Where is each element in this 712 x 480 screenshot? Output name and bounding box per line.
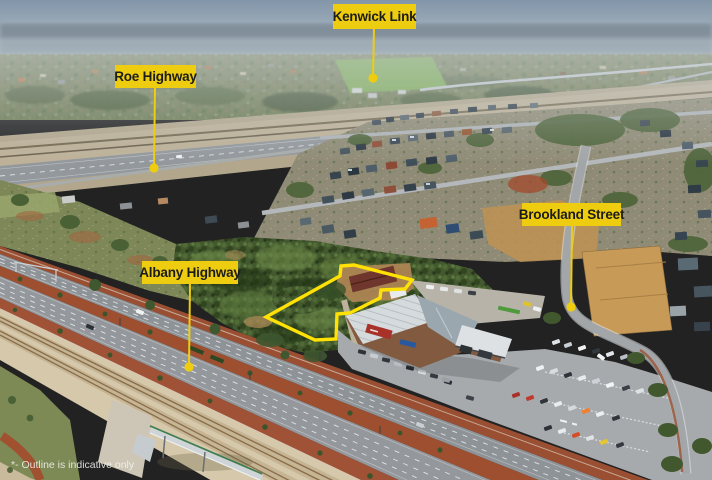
aerial-photo-canvas: Kenwick Link Roe Highway Brookland Stree… — [0, 0, 712, 480]
roe-highway-label: Roe Highway — [114, 69, 197, 84]
brookland-street-label: Brookland Street — [519, 207, 625, 222]
nursery-patch — [508, 175, 548, 193]
roe-highway-dot — [149, 163, 158, 172]
outline-disclaimer: *- Outline is indicative only — [11, 459, 135, 471]
albany-highway-dot — [184, 362, 193, 371]
aerial-photo: Kenwick Link Roe Highway Brookland Stree… — [0, 0, 712, 480]
kenwick-link-dot — [368, 73, 377, 82]
brookland-houses — [670, 257, 712, 331]
albany-highway-label: Albany Highway — [139, 265, 241, 280]
haze-overlay — [0, 54, 712, 164]
kenwick-link-label: Kenwick Link — [333, 9, 418, 24]
brookland-street-dot — [566, 302, 575, 311]
